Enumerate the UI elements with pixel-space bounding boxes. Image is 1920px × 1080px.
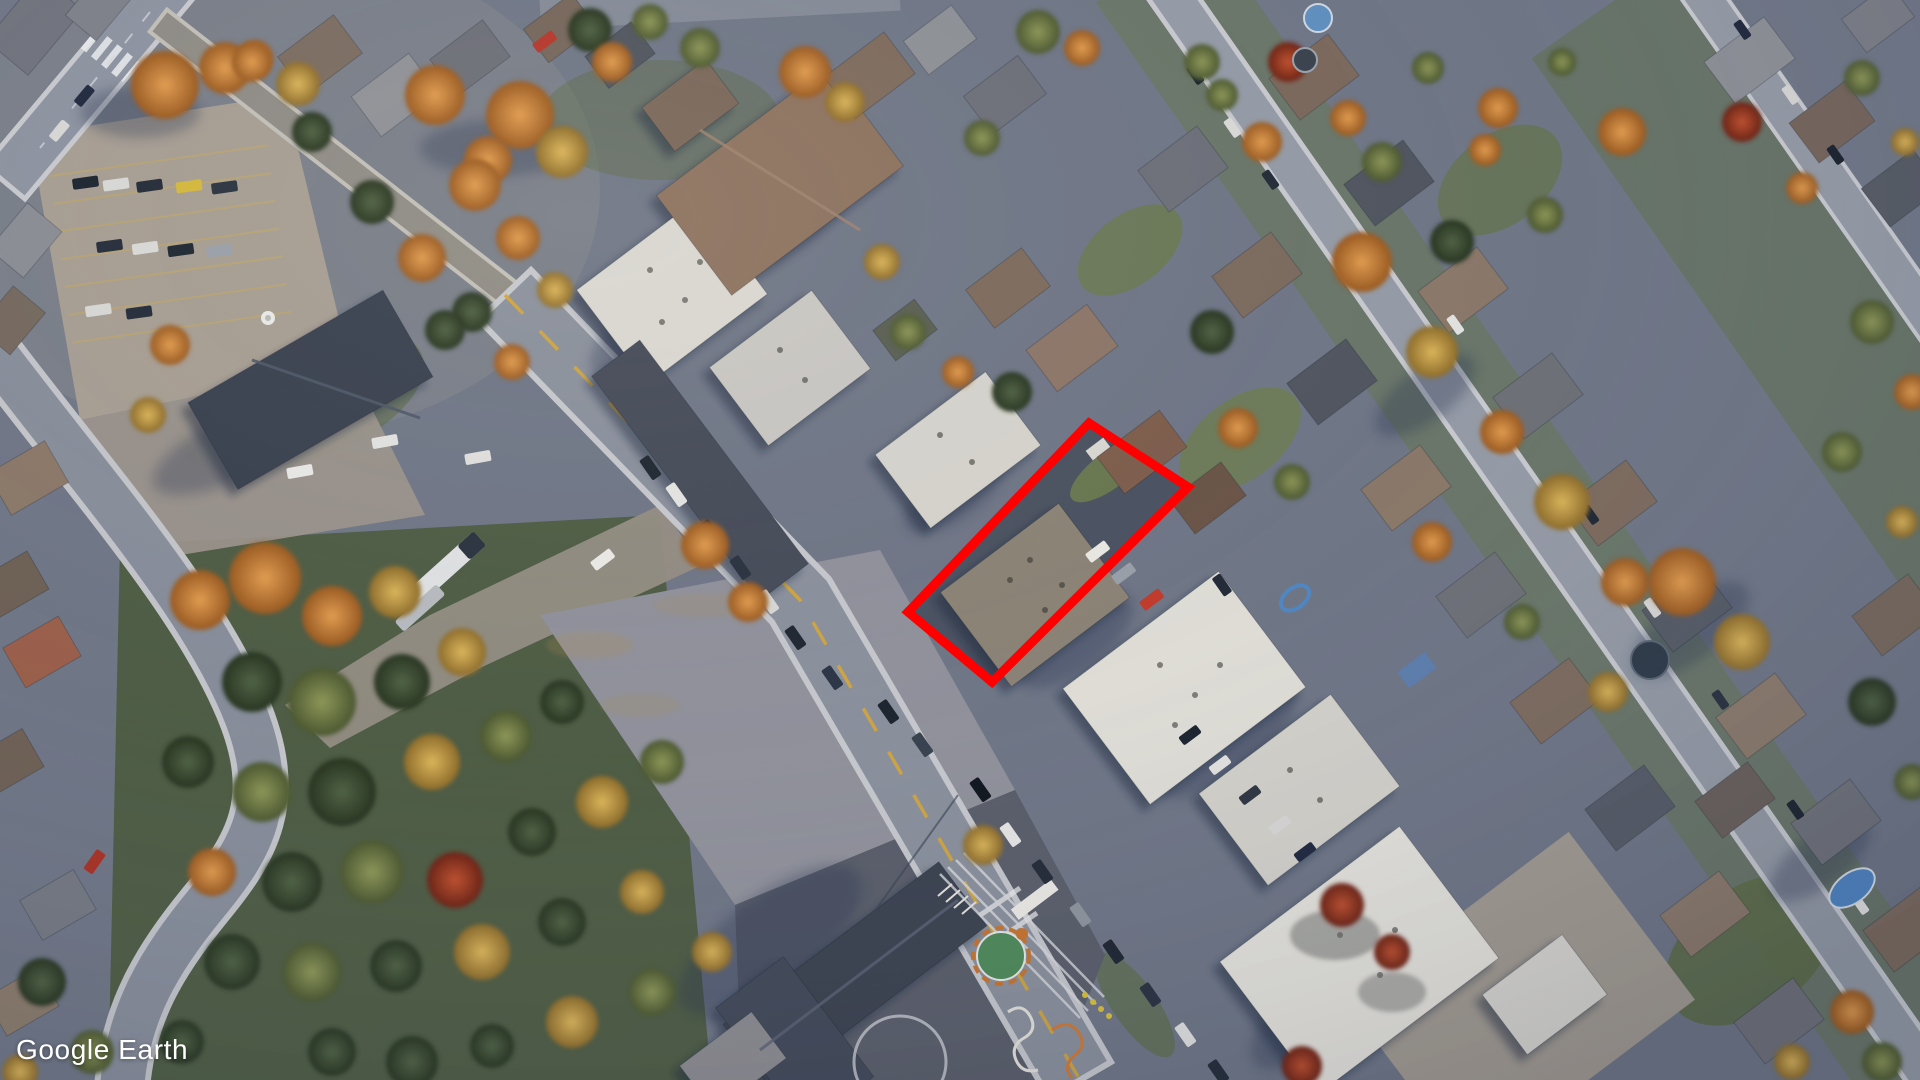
google-earth-viewport: Google Earth (0, 0, 1920, 1080)
google-earth-watermark: Google Earth (16, 1034, 188, 1066)
vignette (0, 0, 1920, 1080)
satellite-imagery[interactable] (0, 0, 1920, 1080)
